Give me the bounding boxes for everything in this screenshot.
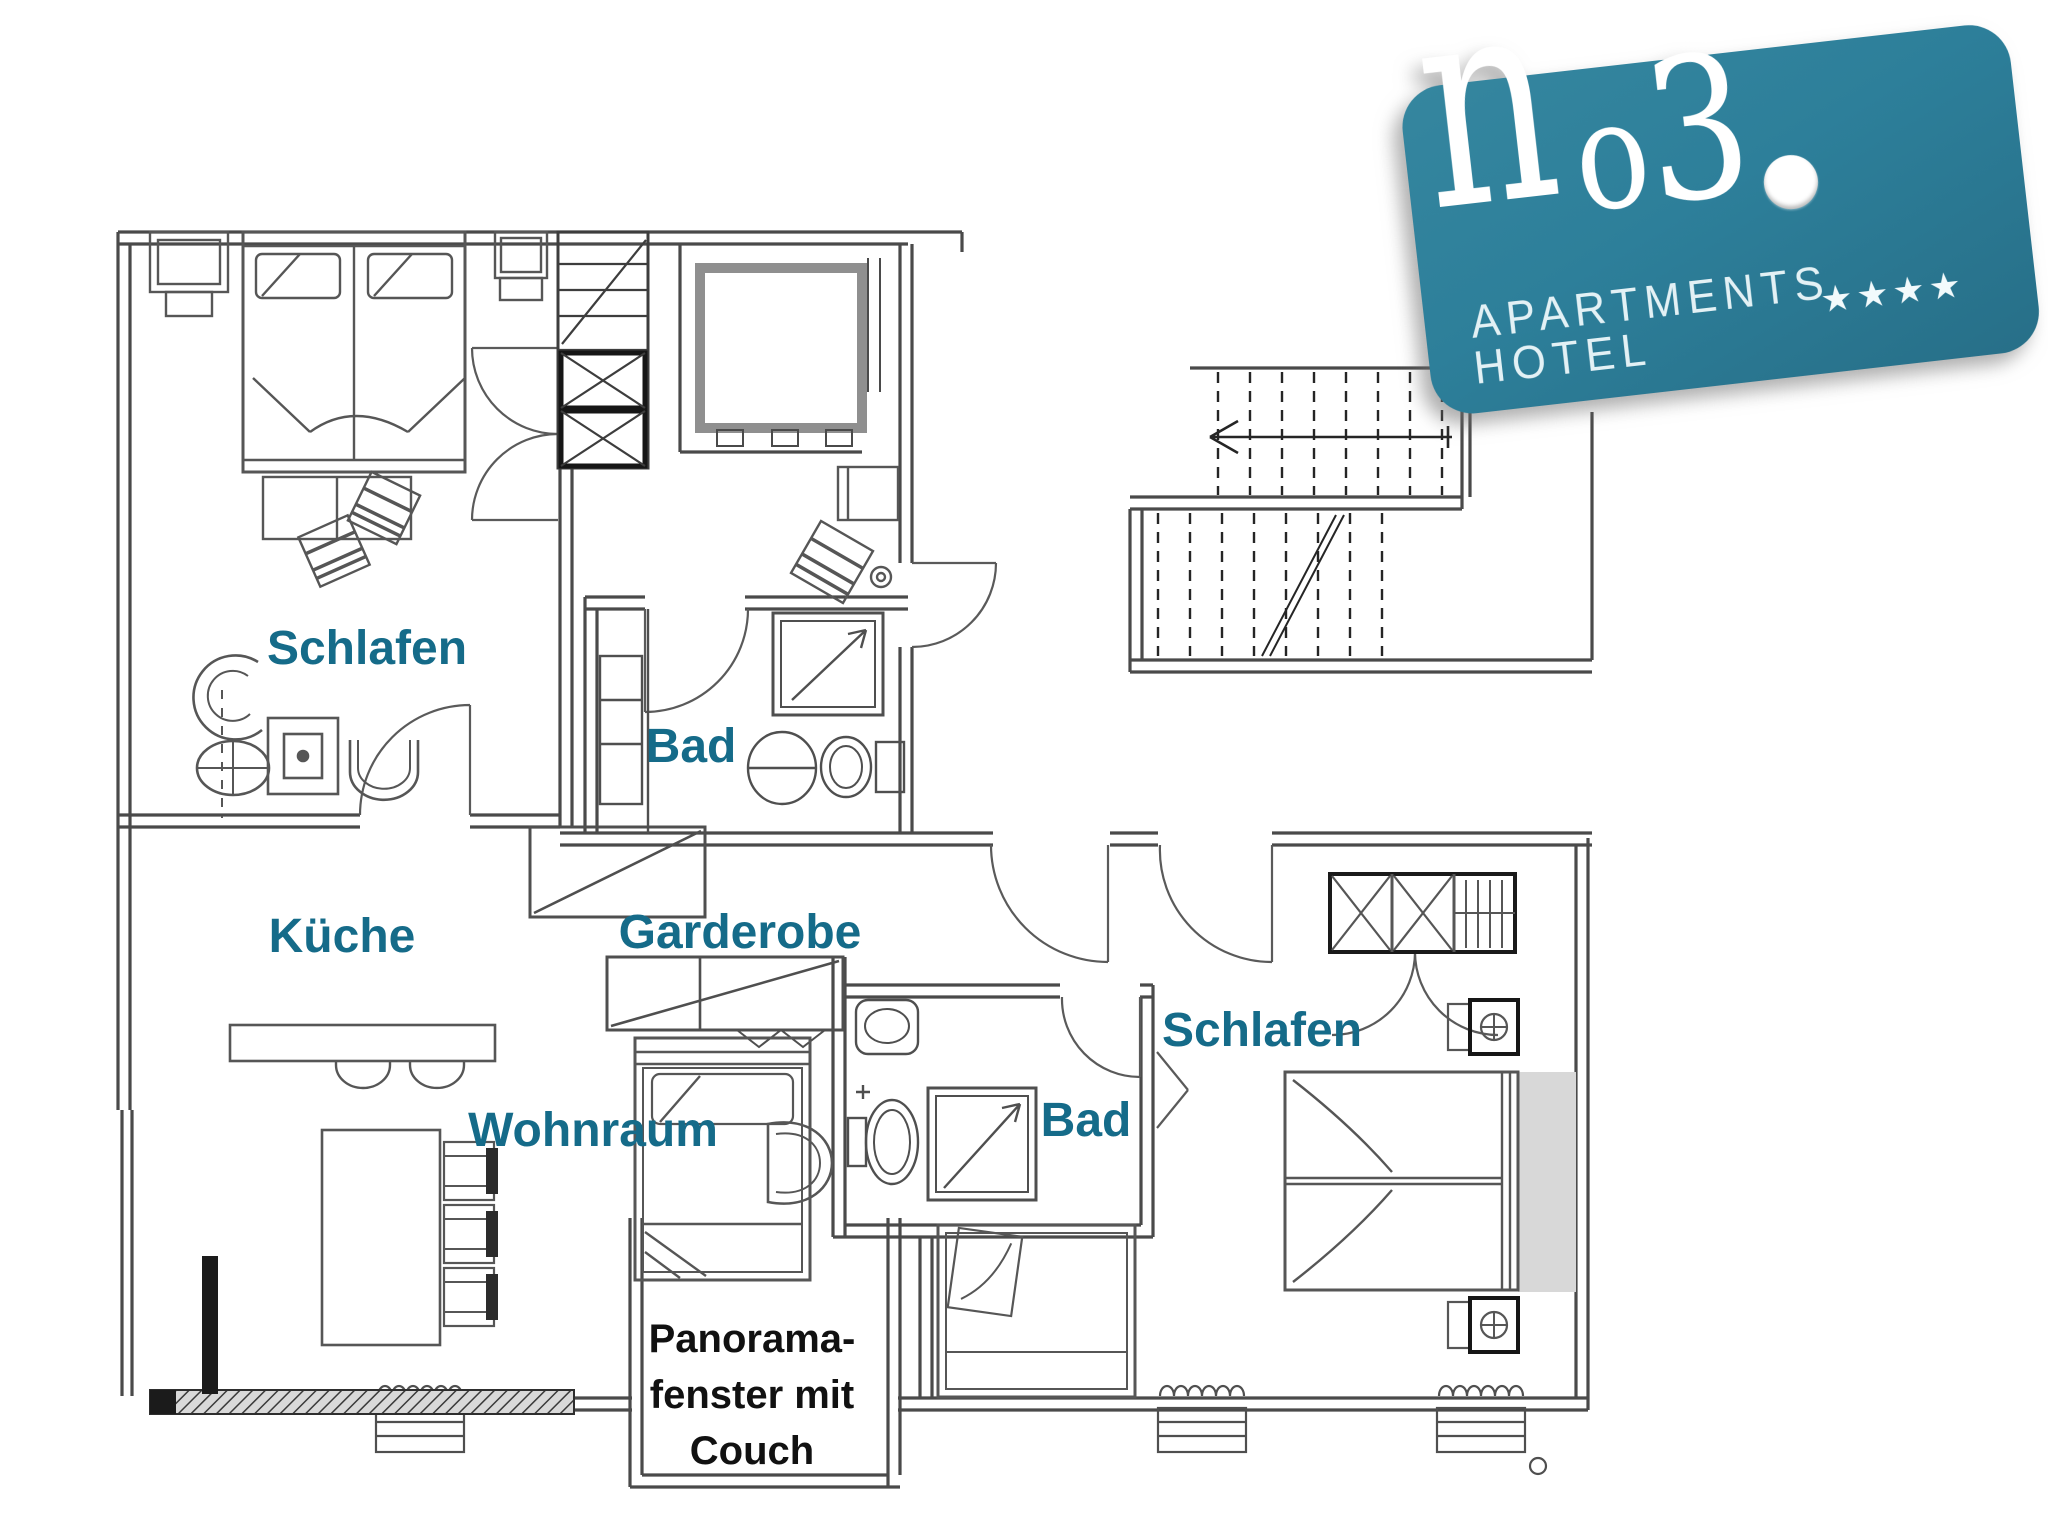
chair xyxy=(348,472,420,544)
wardrobe-left xyxy=(558,232,648,468)
nightstand-with-lamp xyxy=(1448,1000,1518,1054)
hotel-logo-tag: n o3 APARTMENTS ★★★★ HOTEL xyxy=(1398,21,2043,418)
stool xyxy=(336,1061,390,1088)
bedroom-right-furniture xyxy=(938,874,1576,1397)
bar-counter xyxy=(230,1025,495,1061)
room-label-schlafen-right: Schlafen xyxy=(1162,1004,1362,1057)
logo-monogram-n: n xyxy=(1404,0,1569,253)
stair-direction-arrow xyxy=(1210,421,1452,453)
kitchen-furniture xyxy=(230,1025,498,1345)
room-label-schlafen-left: Schlafen xyxy=(267,622,467,675)
staircase xyxy=(1158,372,1452,656)
room-label-garderobe: Garderobe xyxy=(619,906,862,959)
room-labels: Schlafen Bad Küche Garderobe Wohnraum Sc… xyxy=(267,622,1362,1157)
walls xyxy=(118,232,1592,1487)
stool xyxy=(410,1061,464,1088)
logo-monogram-o3: o3 xyxy=(1562,27,1759,242)
island-table xyxy=(322,1130,440,1345)
tag-hole xyxy=(1761,152,1821,212)
u-chair xyxy=(350,740,418,800)
svg-text:Panorama-: Panorama- xyxy=(649,1317,856,1361)
logo-star-rating: ★★★★ xyxy=(1818,263,1967,321)
panorama-annotation: Panorama- fenster mit Couch xyxy=(649,1317,856,1473)
washer-column xyxy=(600,656,642,804)
nightstand-with-lamp xyxy=(1448,1298,1518,1352)
wardrobe-right xyxy=(1330,874,1515,952)
room-label-bad-left: Bad xyxy=(646,720,737,773)
shaft-room xyxy=(680,244,880,452)
room-label-wohnraum: Wohnraum xyxy=(468,1104,718,1157)
chair xyxy=(444,1205,498,1263)
shower xyxy=(773,613,883,715)
round-chair xyxy=(193,655,262,739)
bedroom-left-furniture xyxy=(150,232,547,587)
chair xyxy=(444,1268,498,1326)
room-label-bad-right: Bad xyxy=(1041,1094,1132,1147)
svg-text:fenster mit: fenster mit xyxy=(650,1373,855,1417)
floorplan-page: Schlafen Bad Küche Garderobe Wohnraum Sc… xyxy=(0,0,2048,1538)
single-bed xyxy=(938,1225,1135,1397)
room-label-kueche: Küche xyxy=(269,910,416,963)
svg-text:Couch: Couch xyxy=(690,1429,814,1473)
desk-area xyxy=(791,467,898,603)
chair xyxy=(791,521,873,603)
vanity-corner xyxy=(193,655,418,818)
wohnraum-furniture xyxy=(635,1038,832,1280)
bathroom-right xyxy=(848,1000,1036,1200)
toilet-tank xyxy=(848,1118,866,1166)
double-bed-right xyxy=(1285,1072,1518,1290)
